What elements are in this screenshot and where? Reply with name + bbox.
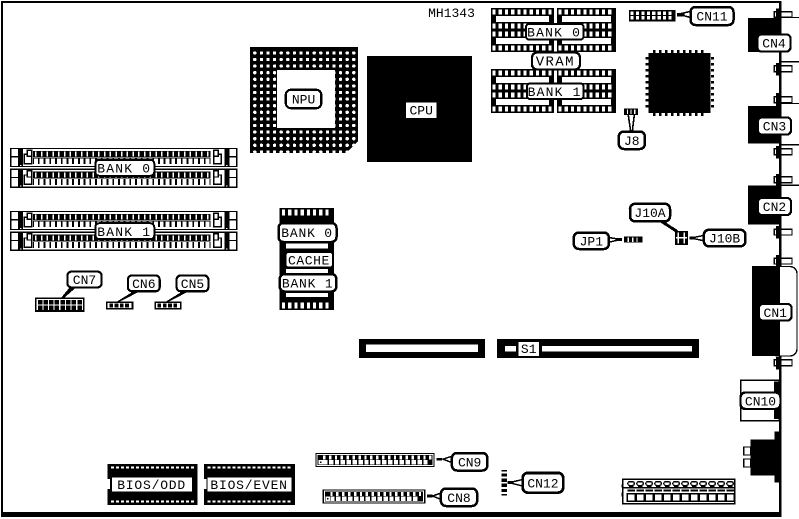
svg-text:CN7: CN7 [73,273,96,288]
svg-text:BIOS/ODD: BIOS/ODD [117,478,186,493]
svg-text:CN1: CN1 [764,306,788,321]
svg-text:CN3: CN3 [763,120,786,135]
svg-text:BANK 1: BANK 1 [97,225,151,240]
svg-text:BANK 1: BANK 1 [528,85,582,100]
svg-text:CN10: CN10 [745,394,776,409]
svg-text:BIOS/EVEN: BIOS/EVEN [210,478,287,493]
svg-text:BANK 1: BANK 1 [282,276,334,291]
svg-text:J10B: J10B [709,232,740,247]
svg-text:CN6: CN6 [132,277,155,292]
svg-text:CPU: CPU [409,104,432,119]
svg-text:BANK 0: BANK 0 [527,25,581,40]
svg-text:S1: S1 [521,342,537,357]
svg-text:CN4: CN4 [762,37,786,52]
svg-text:CN12: CN12 [527,476,558,491]
svg-text:MH1343: MH1343 [428,6,475,21]
svg-text:CN9: CN9 [458,455,481,470]
svg-text:CACHE: CACHE [288,253,330,268]
svg-text:J10A: J10A [634,206,665,221]
svg-text:CN2: CN2 [763,200,786,215]
svg-text:J8: J8 [624,134,640,149]
svg-text:VRAM: VRAM [536,55,575,71]
svg-text:CN8: CN8 [447,491,470,506]
svg-text:CN5: CN5 [181,277,204,292]
svg-text:BANK 0: BANK 0 [97,161,151,176]
svg-text:JP1: JP1 [580,234,604,249]
svg-text:BANK 0: BANK 0 [281,226,333,241]
svg-text:NPU: NPU [292,93,315,108]
svg-text:CN11: CN11 [696,10,727,25]
